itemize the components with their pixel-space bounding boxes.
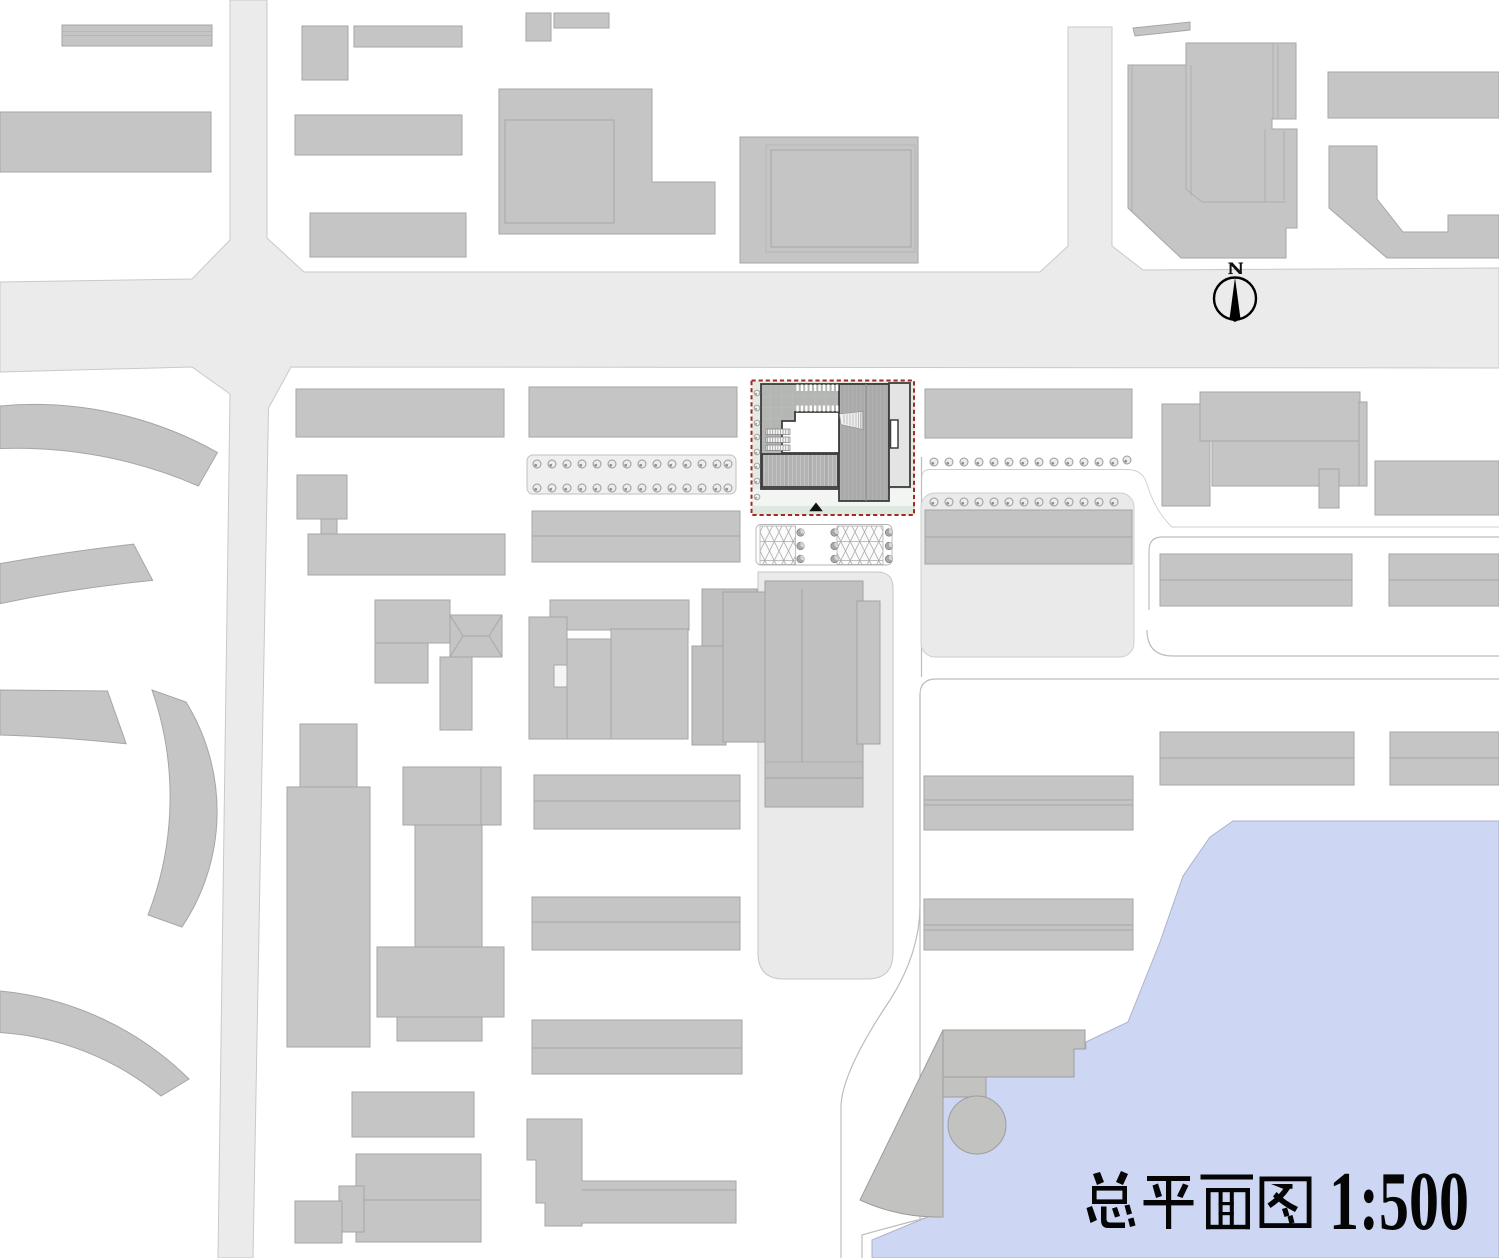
svg-text:1:500: 1:500	[1329, 1155, 1469, 1248]
